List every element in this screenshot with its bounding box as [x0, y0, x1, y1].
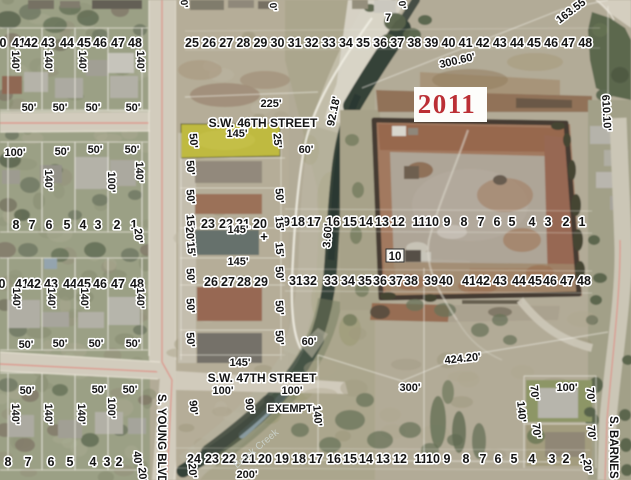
svg-text:29: 29 [254, 275, 268, 289]
svg-text:2: 2 [563, 452, 570, 466]
svg-text:13: 13 [375, 215, 389, 229]
svg-text:4: 4 [80, 218, 87, 232]
svg-text:20': 20' [131, 228, 144, 244]
svg-text:44: 44 [60, 36, 74, 50]
svg-text:9: 9 [444, 215, 451, 229]
svg-text:47: 47 [111, 36, 125, 50]
svg-text:42: 42 [476, 36, 490, 50]
svg-text:140': 140' [42, 51, 54, 72]
svg-text:140': 140' [9, 51, 21, 72]
svg-text:50': 50' [89, 338, 104, 350]
svg-text:33: 33 [322, 36, 336, 50]
svg-text:5: 5 [64, 218, 71, 232]
svg-text:12: 12 [393, 452, 407, 466]
svg-text:140': 140' [42, 170, 54, 191]
svg-text:2: 2 [563, 215, 570, 229]
svg-text:23: 23 [201, 217, 215, 231]
svg-text:140': 140' [76, 51, 88, 72]
svg-text:36: 36 [373, 36, 387, 50]
svg-text:140': 140' [133, 162, 145, 183]
svg-text:42: 42 [27, 277, 41, 291]
svg-text:47: 47 [560, 274, 574, 288]
svg-text:6: 6 [48, 455, 55, 469]
svg-text:45: 45 [77, 36, 91, 50]
svg-text:41: 41 [462, 274, 476, 288]
svg-text:140': 140' [10, 288, 22, 309]
svg-text:70': 70' [527, 385, 540, 401]
svg-text:5: 5 [509, 215, 516, 229]
svg-text:43: 43 [493, 36, 507, 50]
svg-text:27: 27 [221, 275, 235, 289]
svg-text:3: 3 [549, 452, 556, 466]
svg-text:50': 50' [20, 385, 35, 397]
svg-text:2: 2 [114, 218, 121, 232]
svg-text:31: 31 [288, 36, 302, 50]
svg-text:18: 18 [291, 215, 305, 229]
svg-text:16: 16 [327, 452, 341, 466]
svg-text:50': 50' [126, 338, 141, 350]
svg-text:70': 70' [583, 387, 596, 403]
svg-text:145': 145' [230, 357, 251, 369]
svg-text:47: 47 [111, 277, 125, 291]
svg-text:0: 0 [0, 277, 6, 291]
svg-text:15: 15 [343, 215, 357, 229]
svg-text:50': 50' [92, 384, 107, 396]
svg-text:37: 37 [389, 274, 403, 288]
svg-text:46: 46 [544, 36, 558, 50]
svg-text:50': 50' [183, 268, 196, 284]
svg-text:0': 0' [178, 0, 190, 8]
svg-text:50': 50' [55, 146, 70, 158]
svg-text:60': 60' [299, 144, 314, 156]
svg-text:100': 100' [105, 172, 117, 193]
svg-text:17: 17 [309, 452, 323, 466]
svg-text:6: 6 [495, 452, 502, 466]
svg-text:3.60': 3.60' [321, 223, 335, 248]
svg-text:S. BARNES: S. BARNES [607, 416, 619, 479]
svg-text:8: 8 [463, 452, 470, 466]
svg-text:15': 15' [272, 216, 285, 232]
svg-text:+: + [260, 229, 268, 244]
svg-text:39: 39 [424, 36, 438, 50]
svg-text:0': 0' [396, 0, 408, 9]
svg-text:25': 25' [270, 133, 283, 149]
svg-text:3: 3 [545, 215, 552, 229]
svg-text:50': 50' [183, 189, 196, 205]
svg-text:19: 19 [275, 452, 289, 466]
svg-text:45: 45 [527, 36, 541, 50]
svg-text:17: 17 [307, 215, 321, 229]
svg-text:300': 300' [400, 382, 421, 394]
svg-text:47: 47 [561, 36, 575, 50]
svg-text:100': 100' [105, 398, 117, 419]
svg-text:100': 100' [213, 385, 234, 397]
svg-text:28: 28 [236, 36, 250, 50]
svg-text:7: 7 [385, 12, 391, 24]
svg-text:50': 50' [53, 338, 68, 350]
svg-text:12: 12 [391, 215, 405, 229]
svg-text:6: 6 [46, 218, 53, 232]
svg-text:145': 145' [228, 224, 249, 236]
svg-text:0': 0' [267, 2, 279, 11]
svg-text:20': 20' [135, 467, 148, 480]
svg-text:140': 140' [45, 288, 57, 309]
svg-text:5: 5 [67, 455, 74, 469]
svg-text:7: 7 [25, 455, 32, 469]
svg-text:43: 43 [41, 36, 55, 50]
svg-text:90': 90' [242, 398, 255, 414]
svg-text:5: 5 [511, 452, 518, 466]
svg-text:70': 70' [584, 425, 597, 441]
svg-text:140': 140' [78, 288, 90, 309]
svg-text:3: 3 [104, 455, 111, 469]
svg-text:8: 8 [13, 218, 20, 232]
svg-text:44: 44 [512, 274, 526, 288]
svg-text:50': 50' [53, 102, 68, 114]
svg-text:26: 26 [204, 275, 218, 289]
svg-text:S.W. 46TH STREET: S.W. 46TH STREET [209, 116, 318, 130]
svg-text:4: 4 [529, 215, 536, 229]
svg-text:9: 9 [444, 452, 451, 466]
svg-text:34: 34 [341, 274, 355, 288]
svg-text:48: 48 [128, 36, 142, 50]
svg-text:38: 38 [404, 274, 418, 288]
svg-text:7: 7 [478, 215, 485, 229]
svg-text:7: 7 [480, 452, 487, 466]
svg-text:28: 28 [237, 275, 251, 289]
svg-text:145': 145' [227, 128, 248, 140]
svg-text:41: 41 [459, 36, 473, 50]
svg-text:35: 35 [358, 274, 372, 288]
svg-text:35: 35 [356, 36, 370, 50]
svg-text:18: 18 [292, 452, 306, 466]
svg-text:4: 4 [90, 455, 97, 469]
svg-text:140': 140' [310, 405, 324, 427]
svg-text:50': 50' [272, 330, 285, 346]
svg-text:2011: 2011 [418, 89, 477, 119]
svg-text:44: 44 [510, 36, 524, 50]
svg-text:42: 42 [24, 36, 38, 50]
svg-text:100': 100' [557, 382, 578, 394]
svg-text:610.10': 610.10' [599, 94, 613, 131]
svg-text:50': 50' [183, 332, 196, 348]
svg-text:8: 8 [461, 215, 468, 229]
svg-text:2: 2 [116, 455, 123, 469]
svg-text:32: 32 [303, 274, 317, 288]
svg-text:23: 23 [205, 452, 219, 466]
svg-text:S. YOUNG BLVD: S. YOUNG BLVD [155, 394, 167, 480]
svg-text:50': 50' [183, 160, 196, 176]
svg-text:39: 39 [424, 274, 438, 288]
svg-text:33: 33 [324, 274, 338, 288]
svg-text:26: 26 [202, 36, 216, 50]
svg-text:38: 38 [407, 36, 421, 50]
svg-text:11: 11 [412, 215, 425, 229]
svg-text:100': 100' [5, 147, 26, 159]
svg-text:14: 14 [359, 452, 373, 466]
svg-text:S.W. 47TH STREET: S.W. 47TH STREET [208, 371, 317, 385]
svg-text:27: 27 [219, 36, 233, 50]
svg-text:40': 40' [130, 451, 143, 467]
svg-text:90': 90' [186, 400, 199, 416]
svg-text:42: 42 [476, 274, 490, 288]
svg-text:46: 46 [543, 274, 557, 288]
svg-text:140': 140' [514, 401, 528, 423]
svg-text:8: 8 [5, 455, 12, 469]
svg-text:50': 50' [272, 188, 285, 204]
svg-text:140': 140' [75, 404, 87, 425]
svg-text:50': 50' [123, 384, 138, 396]
svg-text:10: 10 [425, 215, 439, 229]
svg-text:32: 32 [305, 36, 319, 50]
svg-text:0: 0 [0, 36, 7, 50]
svg-text:40: 40 [442, 36, 456, 50]
svg-text:10: 10 [389, 251, 402, 263]
svg-text:4: 4 [529, 452, 536, 466]
svg-text:200': 200' [237, 469, 258, 480]
svg-text:15': 15' [272, 242, 285, 258]
svg-text:50': 50' [126, 102, 141, 114]
svg-text:36: 36 [373, 274, 387, 288]
svg-text:20': 20' [185, 463, 198, 479]
svg-text:70': 70' [529, 423, 542, 439]
svg-text:7: 7 [29, 218, 36, 232]
svg-text:50': 50' [125, 144, 140, 156]
svg-text:140': 140' [134, 51, 146, 72]
svg-text:50': 50' [22, 102, 37, 114]
svg-text:46: 46 [93, 36, 107, 50]
svg-text:25: 25 [185, 36, 199, 50]
svg-text:6: 6 [494, 215, 501, 229]
svg-text:60': 60' [302, 336, 317, 348]
svg-text:50': 50' [186, 133, 199, 149]
svg-text:48: 48 [577, 274, 591, 288]
svg-text:100': 100' [282, 385, 303, 397]
svg-text:46: 46 [93, 277, 107, 291]
svg-text:10: 10 [426, 452, 440, 466]
svg-text:15: 15 [343, 452, 357, 466]
svg-text:14: 14 [359, 215, 373, 229]
svg-text:30: 30 [271, 36, 285, 50]
svg-text:40: 40 [439, 274, 453, 288]
svg-text:20': 20' [580, 459, 593, 475]
svg-text:1: 1 [579, 215, 586, 229]
svg-text:140': 140' [42, 404, 54, 425]
svg-text:140': 140' [134, 288, 146, 309]
svg-text:50': 50' [19, 339, 34, 351]
svg-text:50': 50' [272, 300, 285, 316]
svg-text:34: 34 [339, 36, 353, 50]
svg-text:20: 20 [258, 452, 272, 466]
svg-text:140': 140' [9, 404, 21, 425]
svg-text:44: 44 [63, 277, 77, 291]
svg-text:145': 145' [228, 256, 249, 268]
svg-text:43: 43 [493, 274, 507, 288]
svg-text:31: 31 [289, 274, 303, 288]
svg-text:3: 3 [95, 218, 102, 232]
svg-text:29: 29 [253, 36, 267, 50]
svg-text:225': 225' [261, 98, 282, 110]
svg-text:13: 13 [376, 452, 390, 466]
svg-text:EXEMPT: EXEMPT [267, 403, 313, 415]
svg-text:50': 50' [272, 266, 285, 282]
svg-text:50': 50' [86, 102, 101, 114]
svg-text:50': 50' [88, 144, 103, 156]
svg-text:50': 50' [183, 298, 196, 314]
svg-text:45: 45 [528, 274, 542, 288]
svg-text:48: 48 [578, 36, 592, 50]
svg-text:37: 37 [390, 36, 404, 50]
